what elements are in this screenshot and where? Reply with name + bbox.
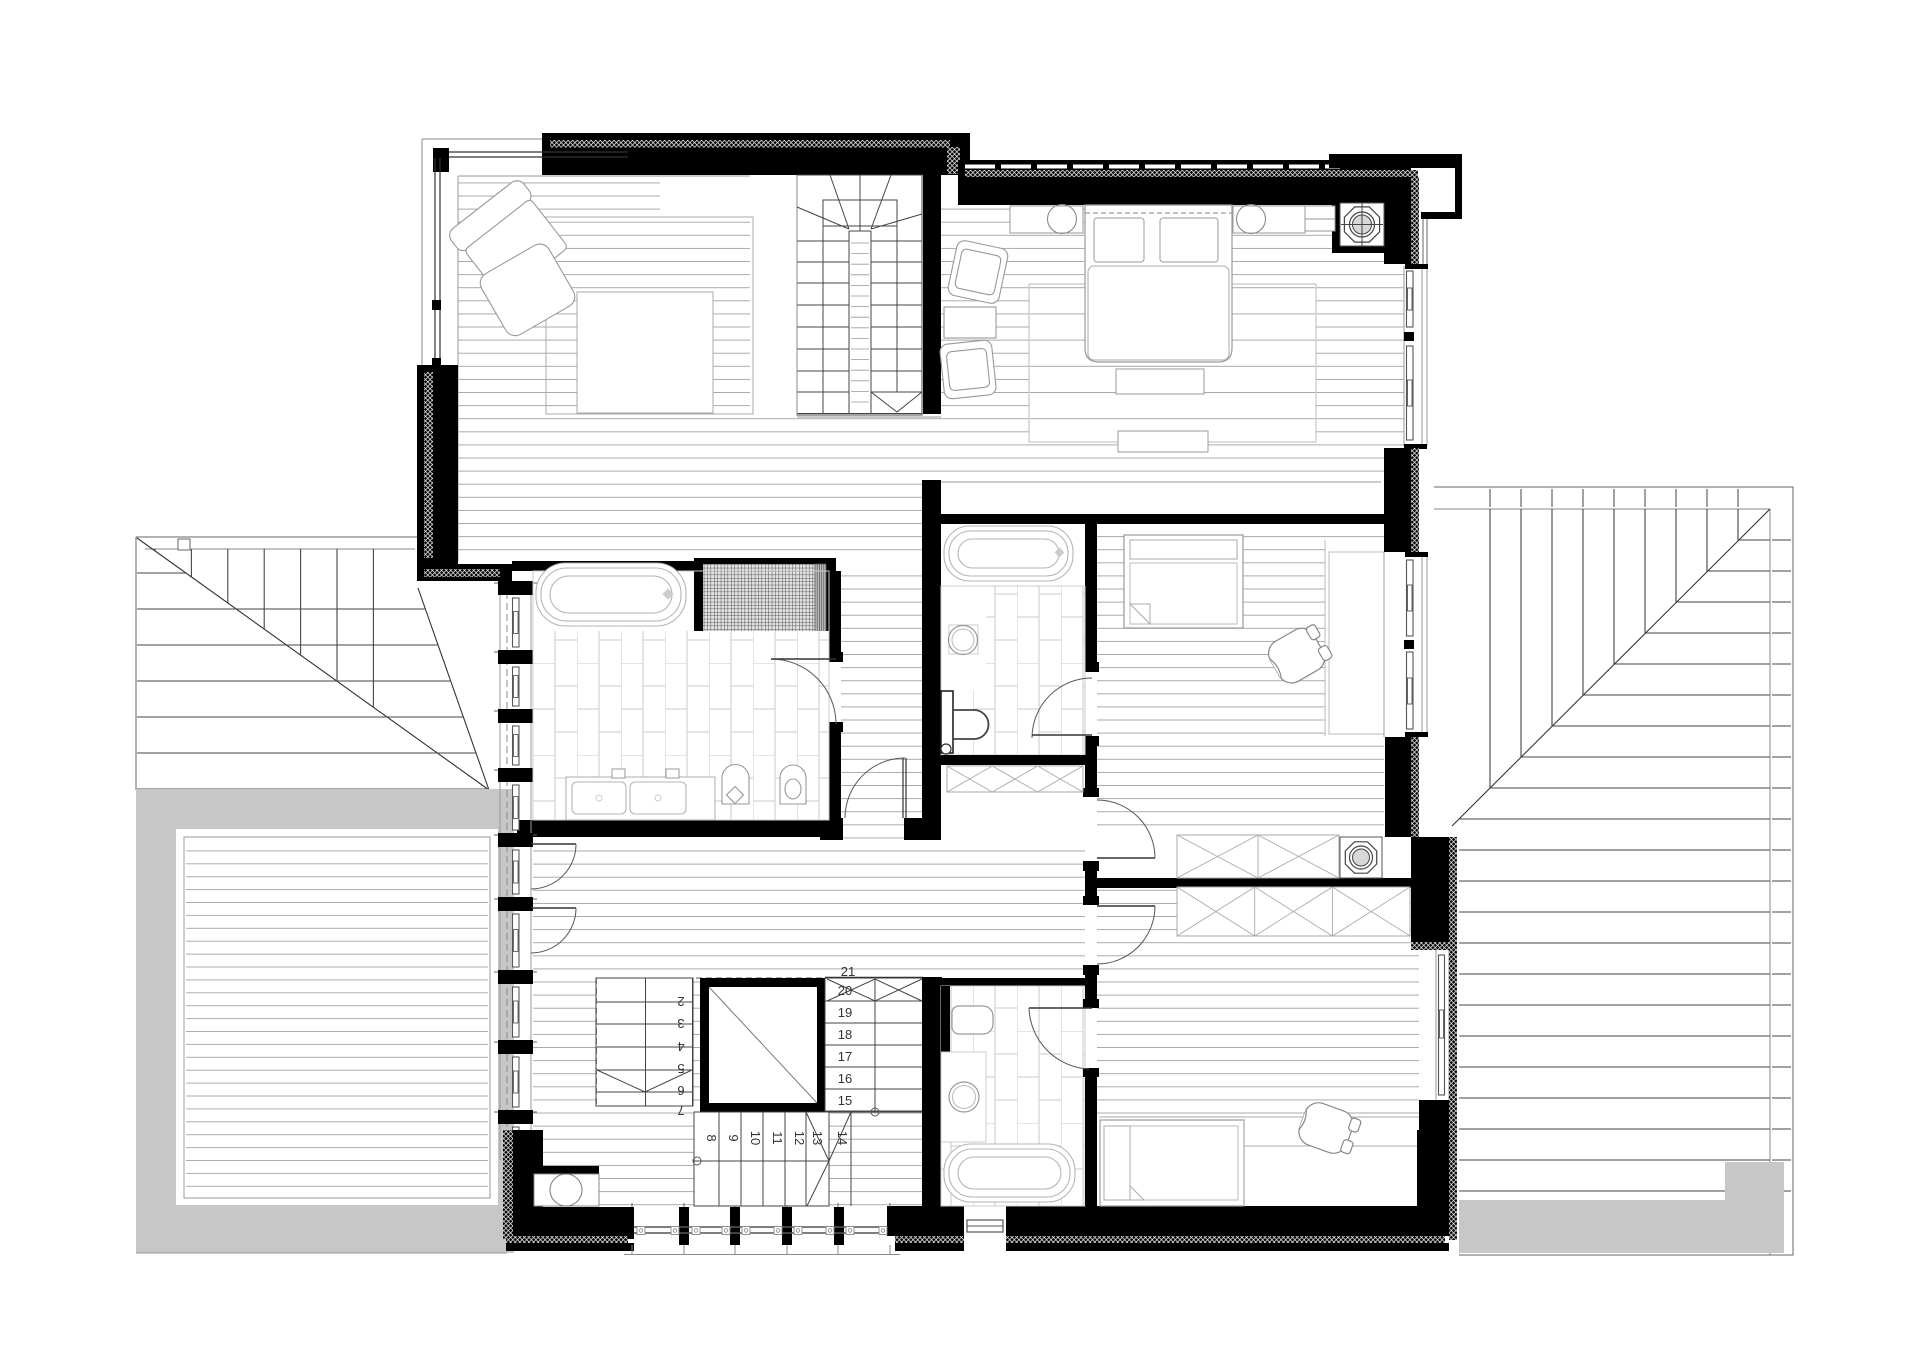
svg-text:5: 5: [677, 1061, 684, 1076]
svg-text:11: 11: [770, 1131, 785, 1145]
svg-text:3: 3: [677, 1016, 684, 1031]
svg-text:9: 9: [726, 1134, 741, 1141]
svg-text:6: 6: [677, 1083, 684, 1098]
svg-text:10: 10: [748, 1131, 763, 1145]
svg-text:4: 4: [677, 1039, 684, 1054]
svg-text:7: 7: [677, 1103, 684, 1118]
svg-text:13: 13: [810, 1131, 825, 1145]
svg-text:14: 14: [835, 1131, 850, 1145]
svg-text:18: 18: [838, 1027, 852, 1042]
svg-text:15: 15: [838, 1093, 852, 1108]
svg-text:12: 12: [792, 1131, 807, 1145]
svg-text:16: 16: [838, 1071, 852, 1086]
svg-text:20: 20: [838, 983, 852, 998]
svg-text:2: 2: [677, 994, 684, 1009]
svg-text:8: 8: [704, 1134, 719, 1141]
svg-text:21: 21: [841, 964, 855, 979]
svg-text:17: 17: [838, 1049, 852, 1064]
svg-text:19: 19: [838, 1005, 852, 1020]
